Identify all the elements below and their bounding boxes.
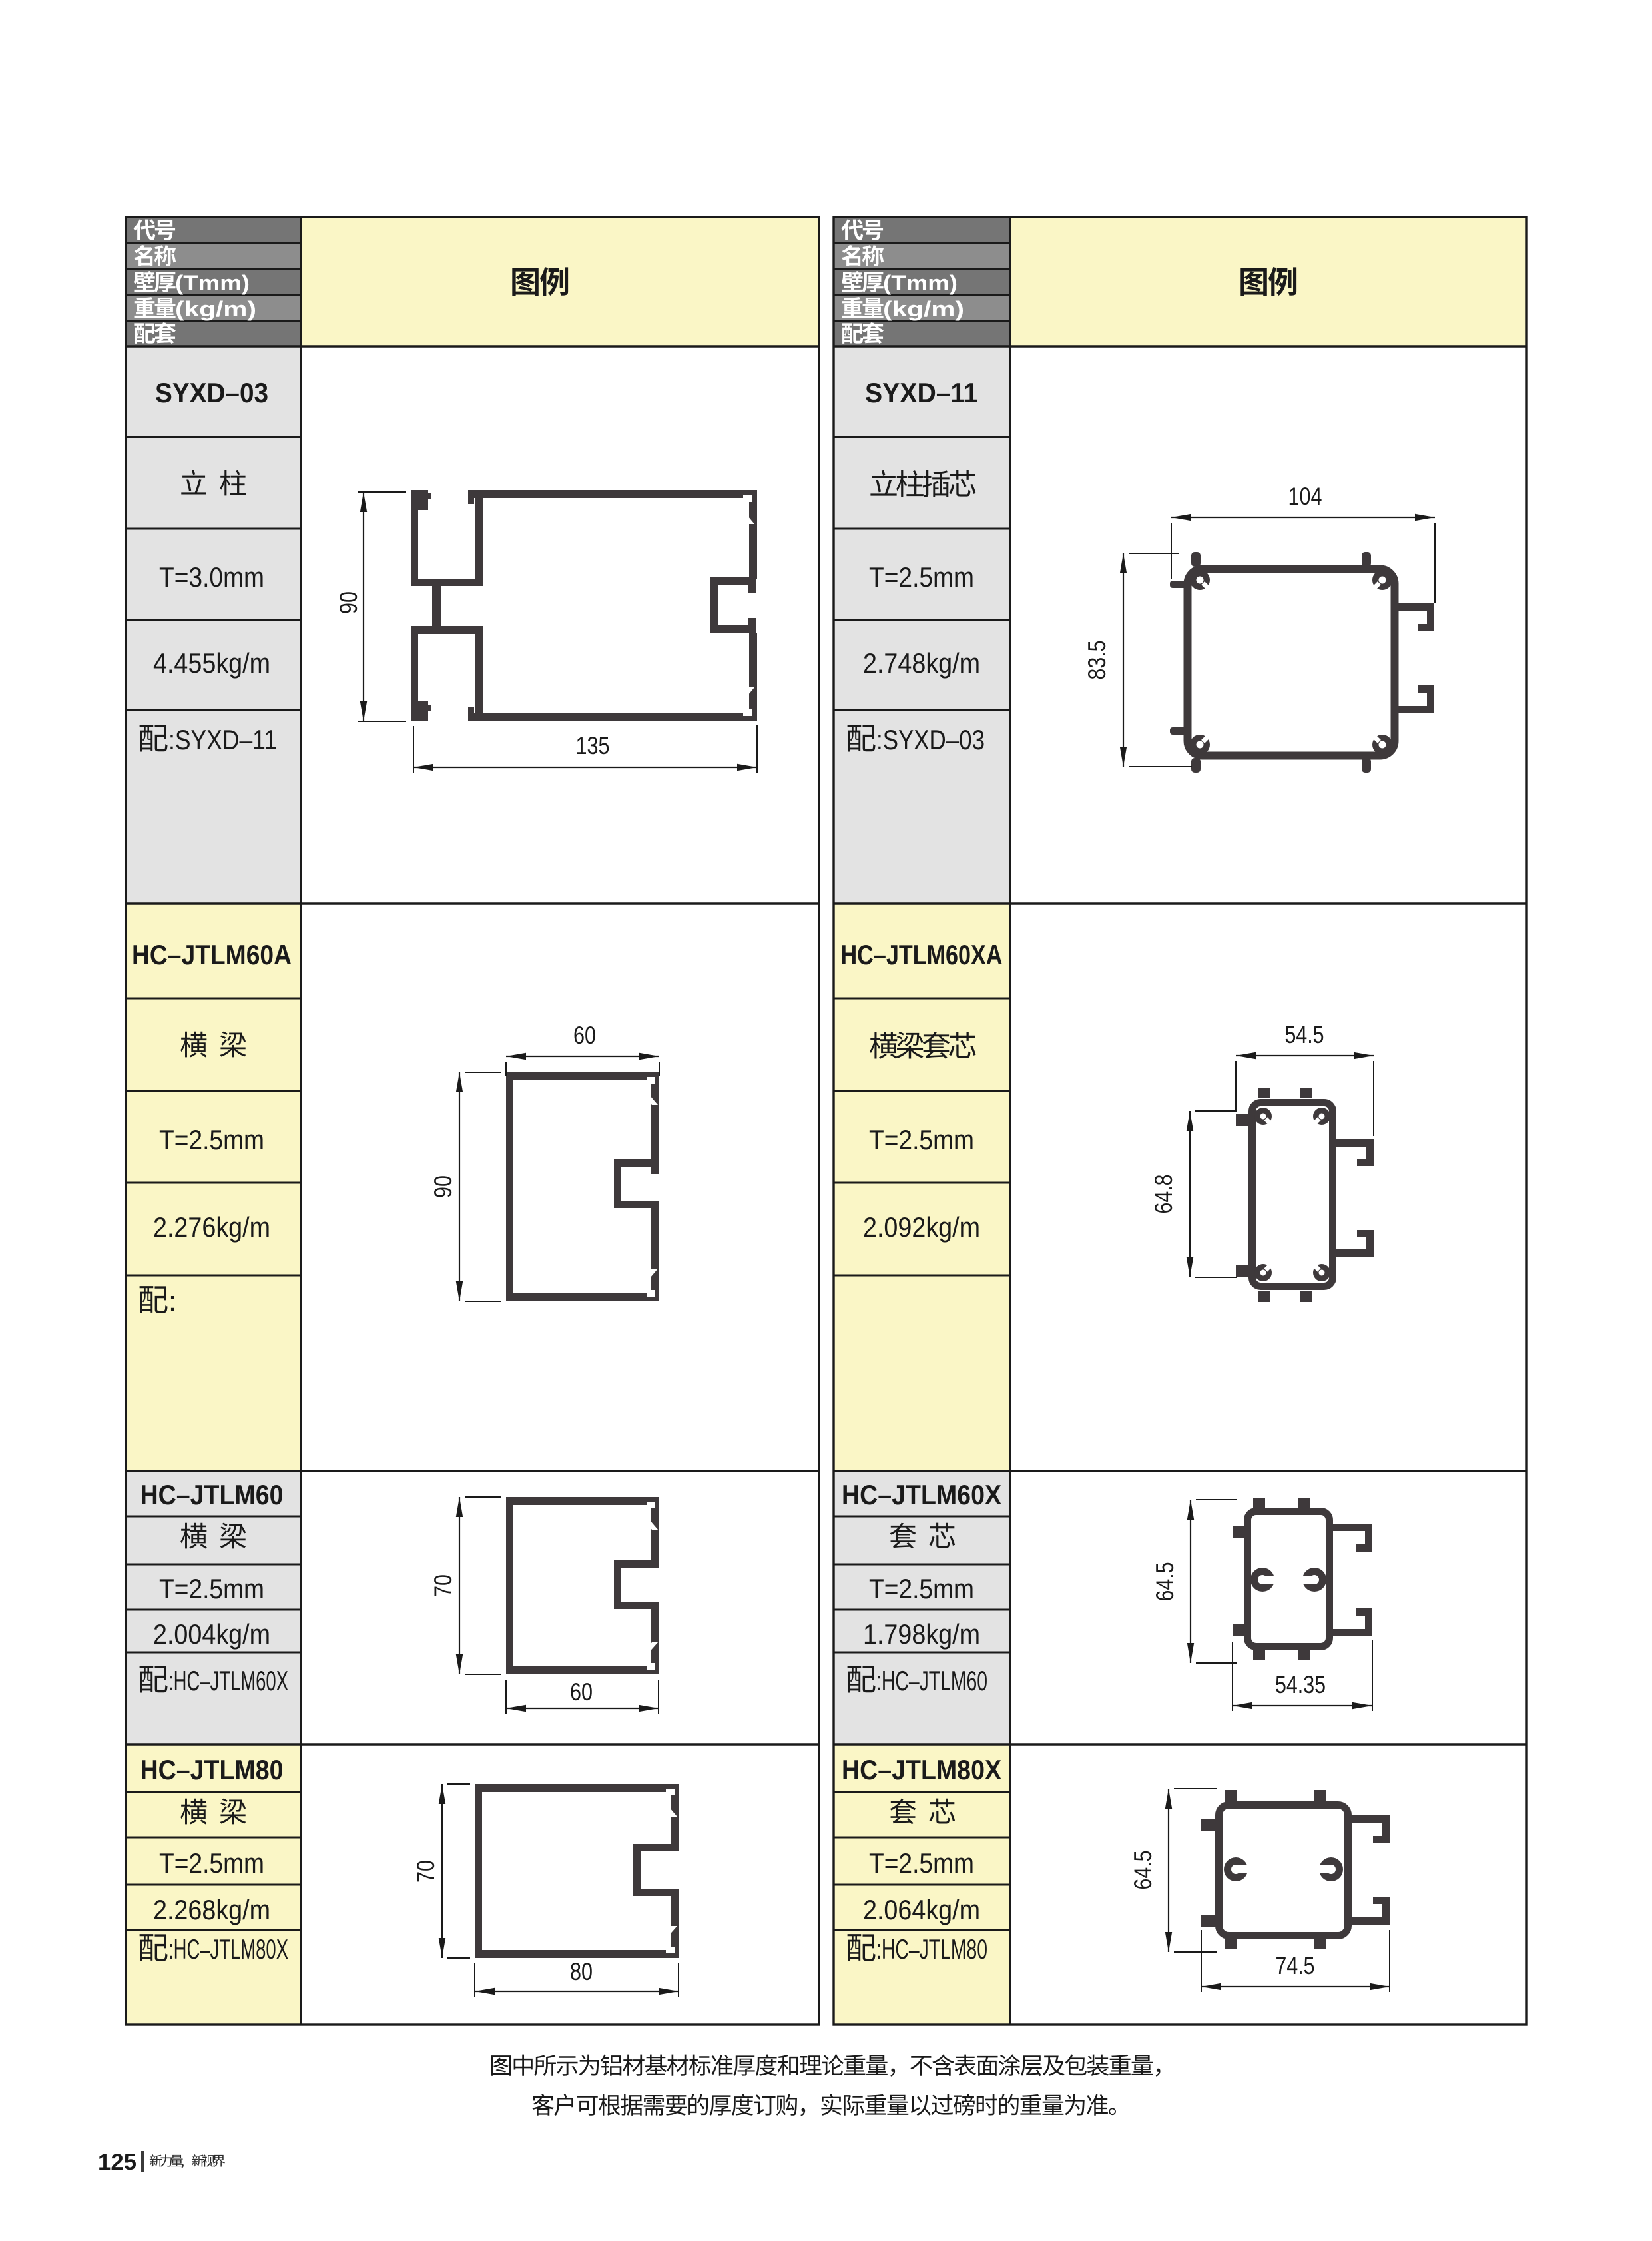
svg-text:60: 60 bbox=[570, 1678, 593, 1706]
svg-text:T=2.5mm: T=2.5mm bbox=[159, 1573, 264, 1604]
svg-text:64.8: 64.8 bbox=[1150, 1175, 1177, 1214]
svg-text:2.748kg/m: 2.748kg/m bbox=[863, 647, 980, 679]
svg-text:70: 70 bbox=[429, 1574, 457, 1597]
svg-text:HC–JTLM60XA: HC–JTLM60XA bbox=[841, 939, 1003, 970]
svg-text:54.5: 54.5 bbox=[1285, 1021, 1324, 1048]
svg-text::: : bbox=[168, 1285, 176, 1317]
svg-text:HC–JTLM80: HC–JTLM80 bbox=[140, 1754, 284, 1785]
svg-text:54.35: 54.35 bbox=[1275, 1671, 1326, 1698]
svg-text:125: 125 bbox=[98, 2150, 137, 2175]
svg-text:2.268kg/m: 2.268kg/m bbox=[153, 1894, 270, 1925]
svg-text:2.064kg/m: 2.064kg/m bbox=[863, 1894, 980, 1925]
svg-text:74.5: 74.5 bbox=[1276, 1952, 1315, 1979]
svg-text:T=2.5mm: T=2.5mm bbox=[869, 1124, 974, 1155]
svg-text:T=3.0mm: T=3.0mm bbox=[159, 561, 264, 593]
svg-text::HC–JTLM80: :HC–JTLM80 bbox=[876, 1933, 987, 1965]
svg-text:2.276kg/m: 2.276kg/m bbox=[153, 1211, 270, 1243]
svg-text:HC–JTLM80X: HC–JTLM80X bbox=[842, 1754, 1001, 1785]
svg-text:2.092kg/m: 2.092kg/m bbox=[863, 1211, 980, 1243]
svg-text:2.004kg/m: 2.004kg/m bbox=[153, 1618, 270, 1650]
svg-text:(Tmm): (Tmm) bbox=[883, 271, 958, 295]
svg-text:SYXD–11: SYXD–11 bbox=[865, 377, 978, 408]
svg-text:80: 80 bbox=[570, 1958, 593, 1985]
svg-text:83.5: 83.5 bbox=[1083, 641, 1111, 680]
svg-text:T=2.5mm: T=2.5mm bbox=[159, 1847, 264, 1879]
svg-text:(kg/m): (kg/m) bbox=[883, 297, 964, 321]
svg-text:T=2.5mm: T=2.5mm bbox=[869, 1847, 974, 1879]
svg-text:HC–JTLM60X: HC–JTLM60X bbox=[842, 1479, 1001, 1510]
svg-text::SYXD–03: :SYXD–03 bbox=[876, 724, 985, 755]
svg-text:4.455kg/m: 4.455kg/m bbox=[153, 647, 270, 679]
svg-text:SYXD–03: SYXD–03 bbox=[155, 377, 268, 408]
svg-text:(Tmm): (Tmm) bbox=[175, 271, 250, 295]
svg-text:90: 90 bbox=[429, 1175, 457, 1198]
svg-text::HC–JTLM60X: :HC–JTLM60X bbox=[168, 1665, 288, 1696]
svg-text::HC–JTLM80X: :HC–JTLM80X bbox=[168, 1933, 288, 1965]
svg-text:135: 135 bbox=[576, 732, 610, 759]
svg-text:60: 60 bbox=[573, 1022, 596, 1049]
svg-text:64.5: 64.5 bbox=[1151, 1562, 1179, 1602]
svg-text:64.5: 64.5 bbox=[1129, 1851, 1157, 1890]
svg-text:104: 104 bbox=[1288, 483, 1322, 510]
svg-text:90: 90 bbox=[335, 591, 362, 614]
svg-text:T=2.5mm: T=2.5mm bbox=[159, 1124, 264, 1155]
svg-text:HC–JTLM60: HC–JTLM60 bbox=[140, 1479, 284, 1510]
svg-text::HC–JTLM60: :HC–JTLM60 bbox=[876, 1665, 987, 1696]
svg-text:70: 70 bbox=[412, 1860, 439, 1883]
svg-text:T=2.5mm: T=2.5mm bbox=[869, 1573, 974, 1604]
svg-text:(kg/m): (kg/m) bbox=[175, 297, 256, 321]
svg-text:HC–JTLM60A: HC–JTLM60A bbox=[132, 939, 292, 970]
svg-text:1.798kg/m: 1.798kg/m bbox=[863, 1618, 980, 1650]
svg-text:T=2.5mm: T=2.5mm bbox=[869, 561, 974, 593]
svg-text::SYXD–11: :SYXD–11 bbox=[168, 724, 277, 755]
